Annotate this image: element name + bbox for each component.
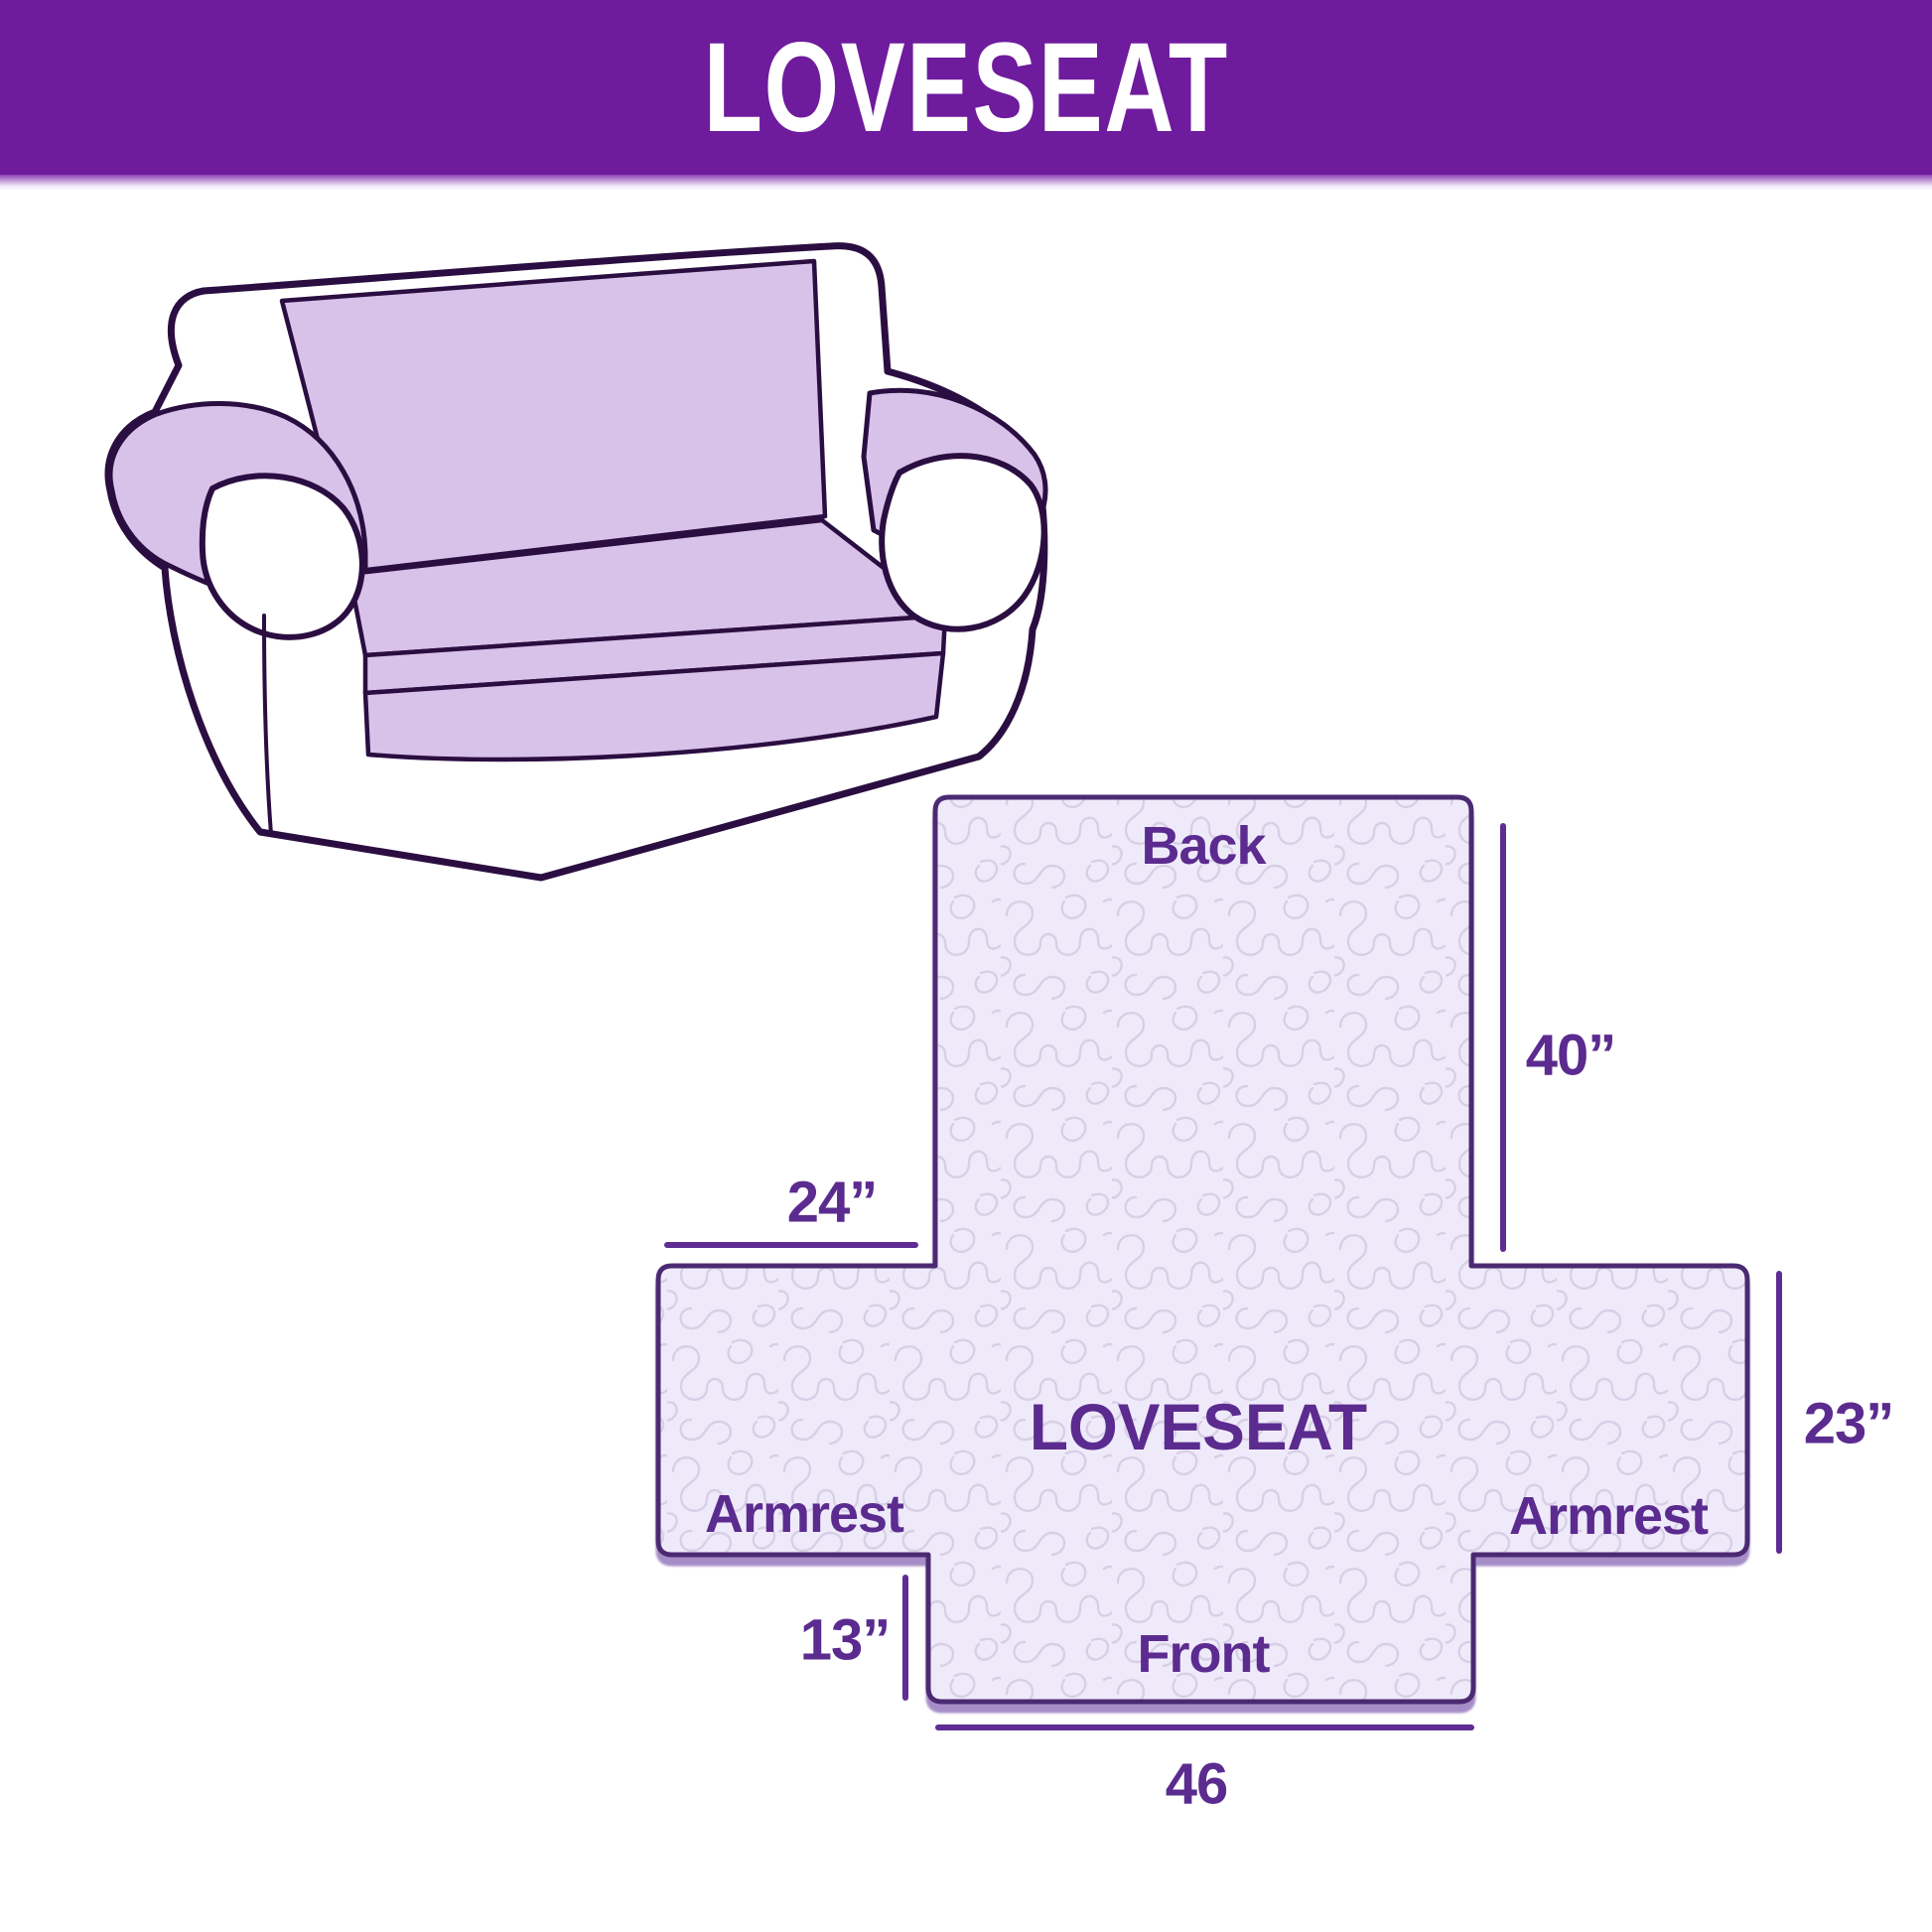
sofa-right-arm-cap bbox=[882, 456, 1043, 629]
armrest-left-label: Armrest bbox=[705, 1483, 903, 1545]
sofa-illustration bbox=[108, 246, 1045, 878]
back-section-label: Back bbox=[1141, 815, 1265, 877]
dim-armrest-side-height: 23” bbox=[1804, 1391, 1894, 1457]
sofa-left-arm-cap bbox=[203, 476, 362, 637]
armrest-right-label: Armrest bbox=[1509, 1485, 1708, 1547]
piece-name-label: LOVESEAT bbox=[1030, 1389, 1367, 1464]
dim-back-height: 40” bbox=[1526, 1023, 1616, 1089]
front-section-label: Front bbox=[1138, 1623, 1270, 1685]
cover-layout-shape bbox=[658, 797, 1747, 1702]
dim-armrest-top-width: 24” bbox=[787, 1170, 878, 1236]
cover-layout bbox=[658, 797, 1779, 1727]
scene-graphic bbox=[0, 0, 1932, 1932]
infographic-canvas: LOVESEAT bbox=[0, 0, 1932, 1932]
dim-front-width: 46 bbox=[1166, 1751, 1228, 1818]
dim-front-flap-height: 13” bbox=[800, 1607, 891, 1674]
